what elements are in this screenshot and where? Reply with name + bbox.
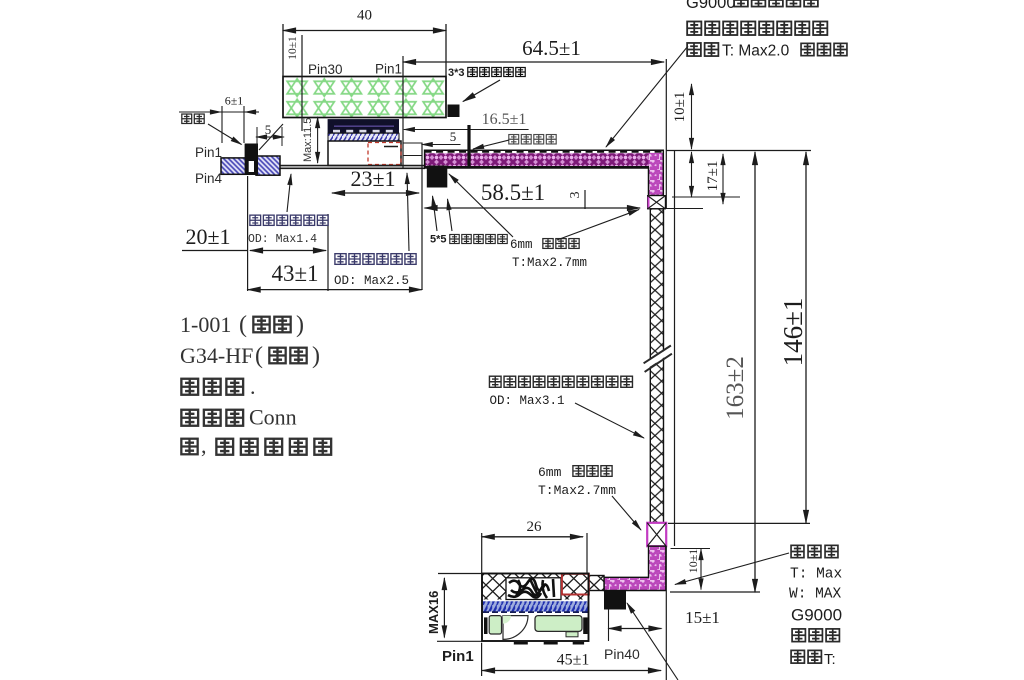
svg-text:15±1: 15±1 xyxy=(685,608,720,627)
svg-text:(: ( xyxy=(239,312,247,338)
svg-text:10±1: 10±1 xyxy=(287,36,299,60)
svg-text:10±1: 10±1 xyxy=(686,549,700,574)
svg-text:OD: Max2.5: OD: Max2.5 xyxy=(334,274,409,288)
svg-text:146±1: 146±1 xyxy=(778,298,808,367)
svg-text:Pin40: Pin40 xyxy=(604,646,640,662)
svg-text:T:Max2.7mm: T:Max2.7mm xyxy=(538,483,616,498)
svg-text:1-001: 1-001 xyxy=(180,312,231,337)
svg-text:): ) xyxy=(312,343,320,369)
svg-text:3: 3 xyxy=(568,192,583,199)
svg-text:163±2: 163±2 xyxy=(722,356,749,420)
svg-text:Max:11.5: Max:11.5 xyxy=(302,118,314,162)
svg-text:23±1: 23±1 xyxy=(350,166,395,191)
svg-text:17±1: 17±1 xyxy=(705,161,721,192)
svg-text:45±1: 45±1 xyxy=(557,652,590,669)
svg-text:OD: Max1.4: OD: Max1.4 xyxy=(248,233,317,246)
svg-text:6±1: 6±1 xyxy=(225,94,244,108)
svg-text:Pin1: Pin1 xyxy=(375,62,402,77)
svg-text:20±1: 20±1 xyxy=(185,224,230,249)
svg-text:58.5±1: 58.5±1 xyxy=(481,180,545,205)
svg-text:43±1: 43±1 xyxy=(271,261,318,286)
svg-text:T:: T: xyxy=(824,651,836,668)
svg-text:Conn: Conn xyxy=(249,405,297,430)
svg-text:64.5±1: 64.5±1 xyxy=(522,36,581,60)
svg-text:5: 5 xyxy=(450,129,457,144)
svg-text:MAX16: MAX16 xyxy=(426,591,441,634)
svg-text:6mm: 6mm xyxy=(538,465,562,480)
svg-text:40: 40 xyxy=(357,8,372,24)
svg-text:G9000: G9000 xyxy=(686,0,736,12)
svg-text:5: 5 xyxy=(265,122,272,137)
svg-text:Pin1: Pin1 xyxy=(442,648,474,665)
svg-text:6mm: 6mm xyxy=(510,238,533,252)
svg-text:5*5: 5*5 xyxy=(430,234,447,246)
svg-text:T:Max2.7mm: T:Max2.7mm xyxy=(512,256,587,270)
svg-text:26: 26 xyxy=(527,519,543,535)
svg-text:(: ( xyxy=(255,343,263,369)
svg-text:OD: Max3.1: OD: Max3.1 xyxy=(490,394,565,408)
svg-text:G9000: G9000 xyxy=(791,606,842,625)
svg-text:Pin4: Pin4 xyxy=(195,171,223,186)
svg-text:T: Max2.0: T: Max2.0 xyxy=(722,43,790,60)
svg-text:T: Max: T: Max xyxy=(790,567,843,583)
svg-text:G34-HF: G34-HF xyxy=(180,343,253,368)
svg-text:Pin1: Pin1 xyxy=(195,145,222,160)
svg-text:): ) xyxy=(296,312,304,338)
svg-text:,: , xyxy=(201,433,207,458)
svg-text:Pin30: Pin30 xyxy=(308,62,343,77)
svg-text:.: . xyxy=(250,374,256,399)
svg-text:10±1: 10±1 xyxy=(672,92,688,123)
svg-text:W: MAX: W: MAX xyxy=(789,587,842,603)
svg-text:3*3: 3*3 xyxy=(448,67,465,79)
svg-text:16.5±1: 16.5±1 xyxy=(482,111,527,128)
